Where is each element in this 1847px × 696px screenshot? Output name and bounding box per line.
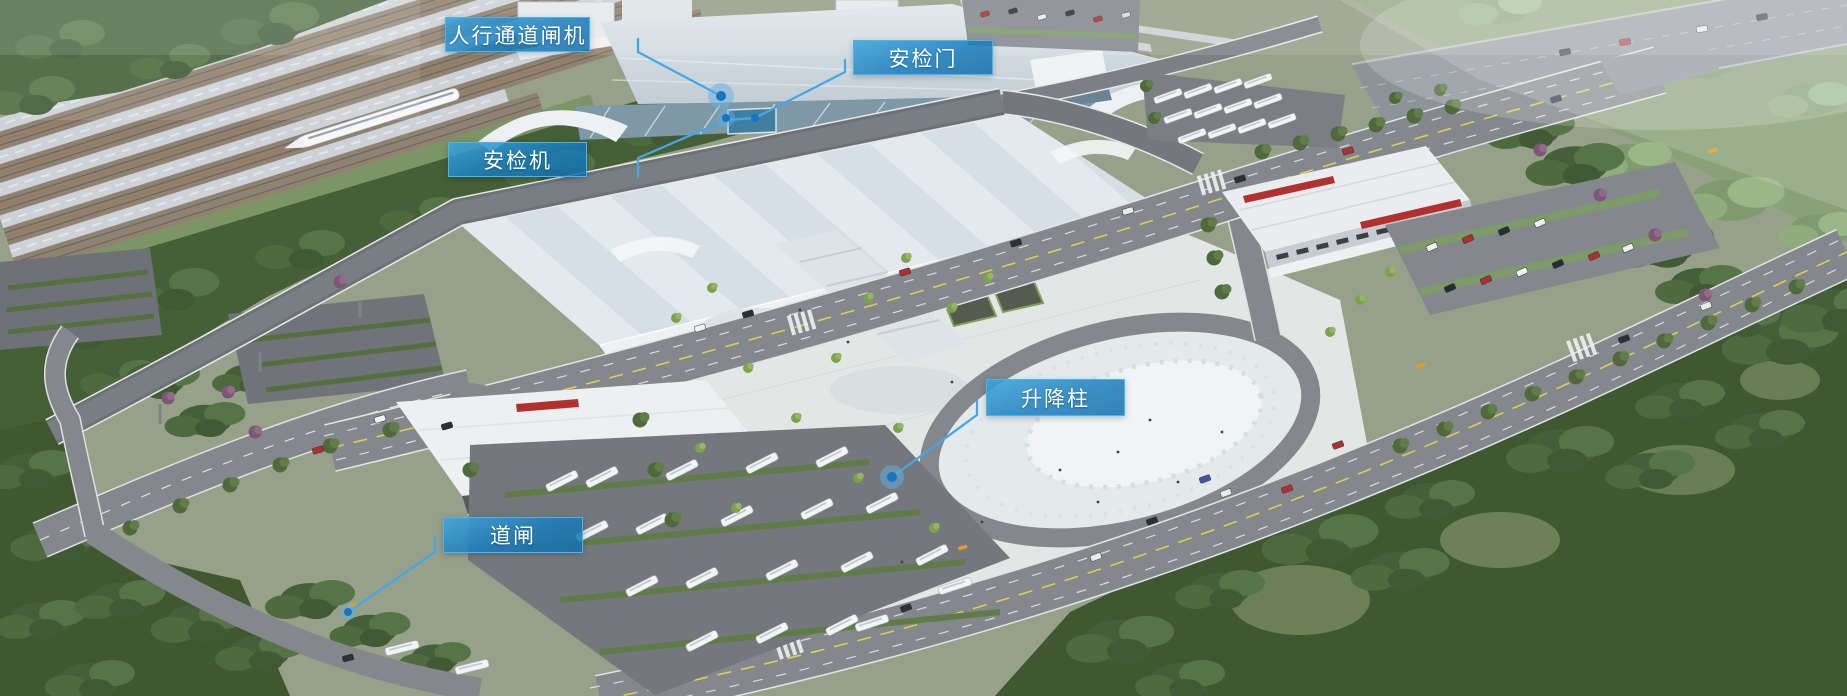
callout-label-road-barrier-gate[interactable]: 道闸 <box>443 517 583 553</box>
marker-dot-lifting-bollard <box>887 472 897 482</box>
callout-label-lifting-bollard[interactable]: 升降柱 <box>986 379 1125 416</box>
station-aerial-scene: 人行通道闸机 安检门 安检机 升降柱 道闸 <box>0 0 1847 696</box>
callout-label-security-check-door[interactable]: 安检门 <box>853 40 993 75</box>
aerial-render <box>0 0 1847 696</box>
callout-label-security-check-scanner[interactable]: 安检机 <box>448 142 587 177</box>
marker-dot-security-scanner <box>722 114 730 122</box>
marker-dot-security-door <box>751 114 759 122</box>
callout-label-pedestrian-gate-machine[interactable]: 人行通道闸机 <box>445 17 590 52</box>
marker-dot-barrier-gate <box>344 608 352 616</box>
parking-lot-left-top <box>0 248 162 350</box>
marker-dot-pedestrian-gate <box>716 91 726 101</box>
